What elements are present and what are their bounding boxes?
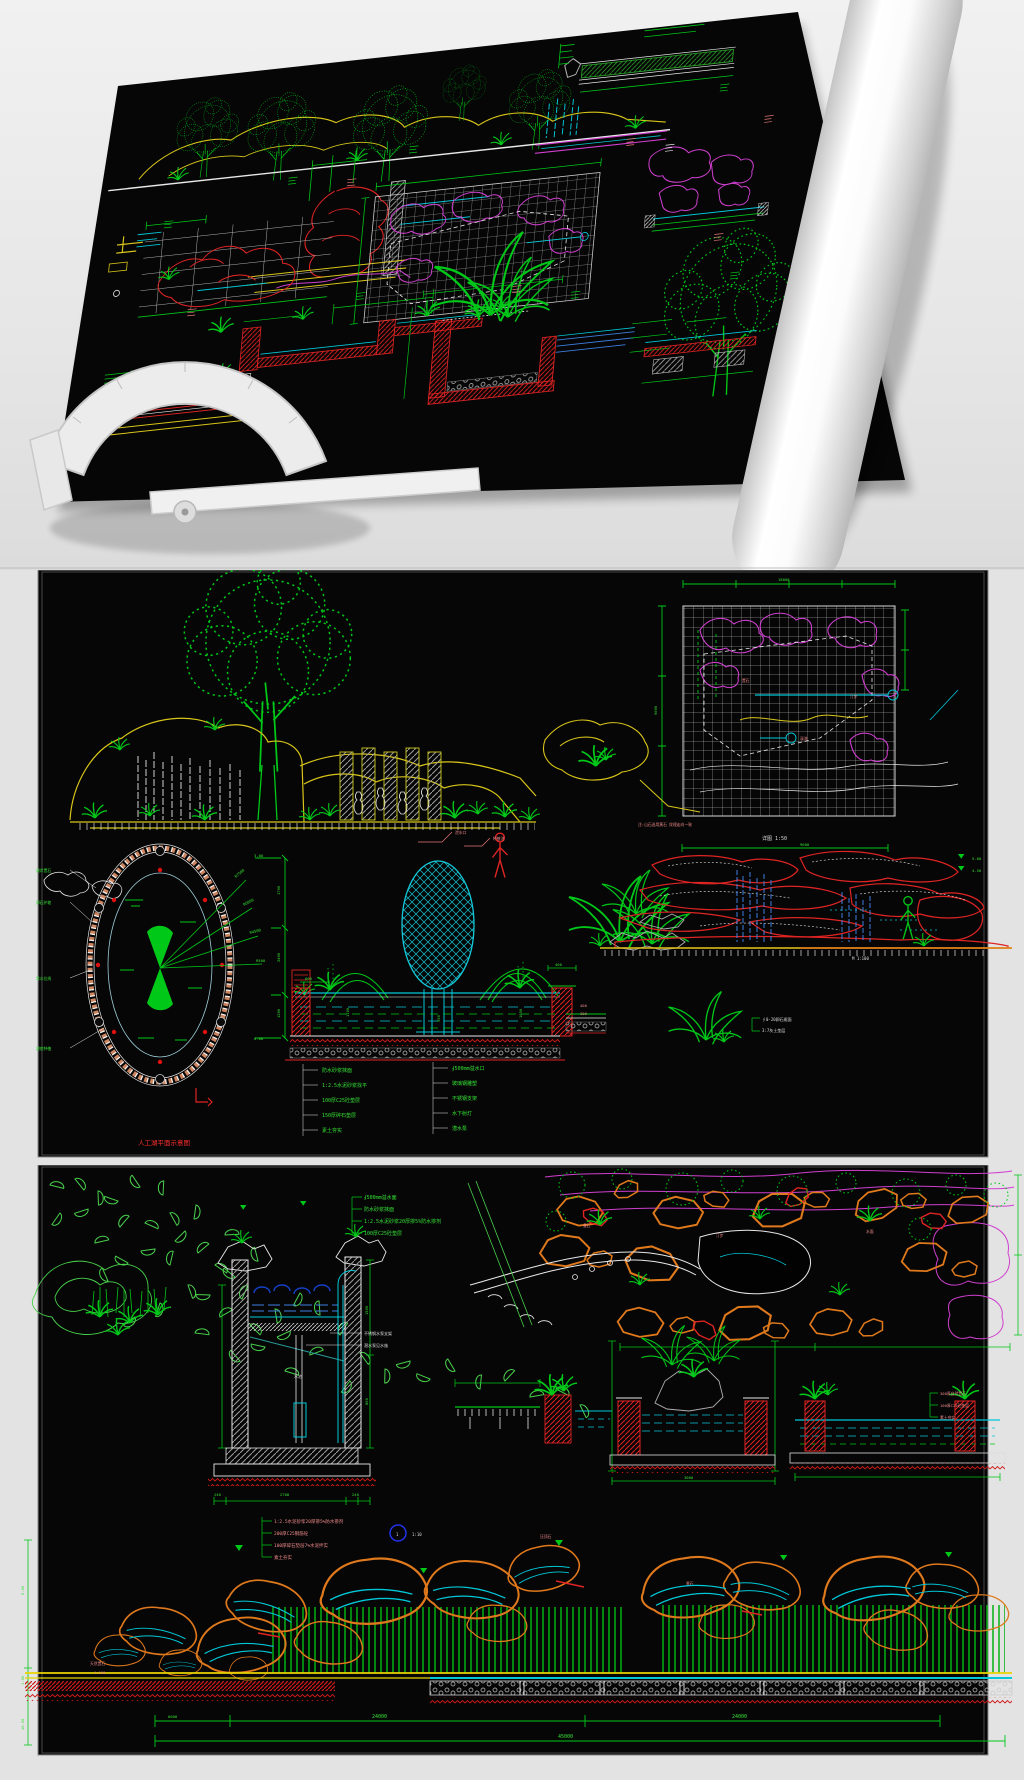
svg-text:1:2.5水泥砂浆20厚掺5%防水掺剂: 1:2.5水泥砂浆20厚掺5%防水掺剂 [274,1518,344,1525]
plan-note: 注:山石选用黄石 纹理走向一致 [638,822,692,827]
elev-scale: 1:100 [94,1670,106,1675]
plan-width-dim: 18000 [778,577,790,582]
fount-small-4: 1050 [518,1008,523,1018]
fount-small-2: 1100 [345,1007,350,1017]
fount-small-0: 600 [305,976,313,981]
svg-text:100厚C25砼垫层: 100厚C25砼垫层 [940,1403,969,1408]
fount-small-3: 950 [436,1014,441,1022]
svg-text:100厚碎石垫层7%水泥拌实: 100厚碎石垫层7%水泥拌实 [274,1542,329,1549]
plan-label-0: 置石 [742,678,750,683]
tank-dim-r1: 800 [364,1397,369,1405]
elev-width-dim: 9600 [800,842,810,847]
curtain-right [660,1605,1005,1673]
svg-text:素土夯实: 素土夯实 [322,1127,342,1134]
pond-radial-3: R500 [256,958,266,963]
fount-leader-0: 泄水口 [455,830,467,835]
cad-preview-page: 18000 9000 置石 溪流 汀步 注:山石选用黄石 纹理走向一致 详图 1… [0,0,1024,1780]
tank-dim-b1: 2700 [280,1492,290,1497]
elev3-level-2: ±0.00 [20,1718,25,1730]
pond-plan-title: 人工湖平面示意图 [138,1138,190,1147]
svg-text:100厚C25砼垫层: 100厚C25砼垫层 [364,1230,402,1237]
elev-name: 天然置石 [90,1661,105,1666]
elev3-level-0: 5.00 [20,1585,25,1595]
pond-label-3: 湖底种植 [36,1046,51,1051]
elev3-level-1: 1.50 [20,1675,25,1685]
svg-text:素土夯实: 素土夯实 [940,1415,955,1420]
svg-text:素土夯实: 素土夯实 [274,1554,292,1561]
edge-dim-0: 400 [580,1003,588,1008]
svg-text:200厚C25钢筋砼: 200厚C25钢筋砼 [274,1530,309,1537]
tank-dim-b0: 240 [214,1492,222,1497]
svg-text:100厚C25砼垫层: 100厚C25砼垫层 [322,1097,360,1104]
svg-text:水下射灯: 水下射灯 [452,1110,472,1117]
tank-dim-b2: 240 [352,1492,360,1497]
elev-level-1: 4.50 [972,868,982,873]
svg-text:防水砂浆抹面: 防水砂浆抹面 [322,1067,352,1074]
svg-text:不锈钢支架: 不锈钢支架 [452,1095,477,1102]
elev-seg-1: 24000 [732,1714,747,1720]
detail-marker-scale: 1:10 [412,1532,422,1537]
pond-label-2: 常水位线 [36,976,51,981]
garden-label-1: 汀步 [716,1233,724,1238]
svg-text:∮0-20卵石缀面: ∮0-20卵石缀面 [762,1016,792,1022]
svg-text:玻璃钢雕塑: 玻璃钢雕塑 [452,1080,477,1087]
fount-dim-1: 1700 [276,885,281,895]
svg-text:∮500mm溢水口: ∮500mm溢水口 [452,1065,485,1072]
plan-label-2: 汀步 [850,694,858,699]
fount-dim-3: 1200 [276,1008,281,1018]
elev-scale: M 1:100 [852,956,869,961]
tank-label: 水池 [294,1373,302,1379]
panel-perspective-sheet [0,0,1024,570]
pump-note-0: 不锈钢水泵支架 [364,1330,392,1336]
detail-title: 详图 1:50 [762,835,787,842]
fount-leader-1: 种植池 [493,836,505,841]
base-slab [430,1681,1012,1695]
garden-label-2: 水面 [866,1229,874,1234]
svg-text:150厚碎石垫层: 150厚碎石垫层 [322,1112,356,1119]
panel-cad-sheet-2: 18000 9000 置石 溪流 汀步 注:山石选用黄石 纹理走向一致 详图 1… [0,570,1024,1165]
tank-dim-r0: 1500 [364,1305,369,1315]
elev-seg-0: 24000 [372,1714,387,1720]
section-dim: 3000 [684,1475,694,1480]
plan-height-dim: 9000 [653,705,658,715]
pump-note-1: 潜水泵见水施 [364,1342,388,1348]
fount-dim-2: 2400 [276,952,281,962]
garden-label-0: 叠石 [583,1223,591,1228]
plan-label-1: 溪流 [800,736,808,741]
elev-total: 45000 [558,1734,573,1740]
base-hatch-left [25,1681,335,1691]
svg-text:1:2.5水泥砂浆找平: 1:2.5水泥砂浆找平 [322,1082,367,1089]
egg-sculpture [402,861,474,989]
svg-text:防水砂浆抹面: 防水砂浆抹面 [364,1206,394,1213]
pond-label-0: 湖岸置石 [36,868,51,873]
svg-text:300厚自然置石: 300厚自然置石 [940,1391,966,1396]
svg-text:∮500mm溢水面: ∮500mm溢水面 [364,1194,397,1201]
edge-dim-1: 300 [580,1011,588,1016]
elev-lead: 6000 [168,1714,178,1719]
pond-label-1: 卵石护坡 [36,900,51,905]
fount-dim-0: 3.00 [254,853,264,858]
fount-small-1: 400 [555,962,563,967]
panel-cad-sheet-3: 1500 800 ∮500mm溢水面 防水砂浆抹面 1:2.5水泥砂浆20厚掺5… [0,1165,1024,1780]
svg-text:1:2.5水泥砂浆20厚掺5%防水掺剂: 1:2.5水泥砂浆20厚掺5%防水掺剂 [364,1218,441,1225]
elev-level-0: 5.00 [972,856,982,861]
fount-dim-4: 0.00 [254,1036,264,1041]
svg-text:潜水泵: 潜水泵 [452,1125,467,1132]
svg-text:3:7灰土垫层: 3:7灰土垫层 [762,1027,785,1033]
elev-top-label-0: 压顶石 [540,1534,552,1539]
